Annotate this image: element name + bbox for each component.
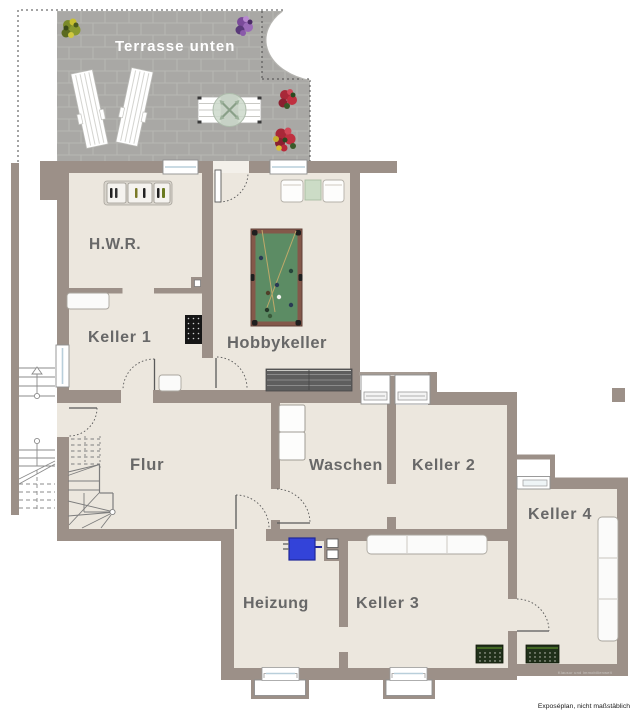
svg-text:Exposéplan, nicht maßstäblich: Exposéplan, nicht maßstäblich	[538, 703, 630, 710]
svg-text:Keller 2: Keller 2	[412, 457, 475, 474]
svg-text:Keller 3: Keller 3	[356, 595, 419, 612]
svg-text:Waschen: Waschen	[309, 457, 383, 474]
svg-text:H.W.R.: H.W.R.	[89, 236, 141, 253]
svg-text:Klausur und Immobilienwelt: Klausur und Immobilienwelt	[558, 670, 613, 675]
svg-text:Terrasse unten: Terrasse unten	[115, 38, 235, 55]
svg-text:Keller 4: Keller 4	[528, 506, 592, 523]
svg-text:Flur: Flur	[130, 456, 164, 474]
svg-text:Hobbykeller: Hobbykeller	[227, 334, 327, 352]
svg-text:Keller 1: Keller 1	[88, 329, 151, 346]
svg-text:Heizung: Heizung	[243, 595, 309, 612]
